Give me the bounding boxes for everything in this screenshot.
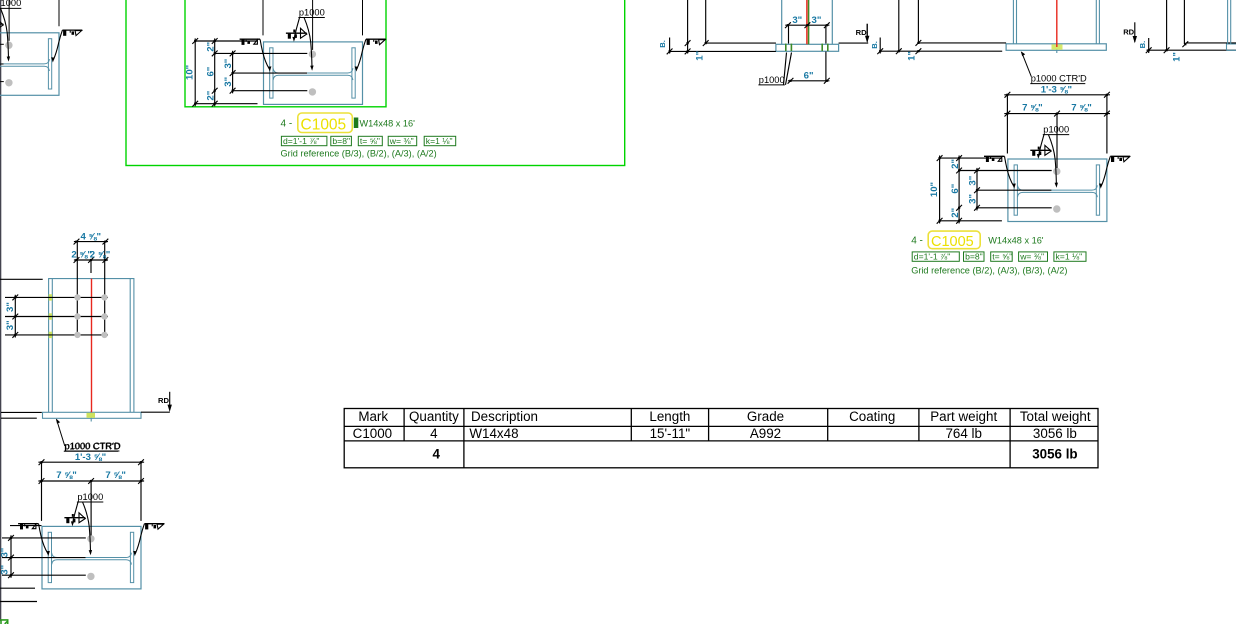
svg-text:b=8": b=8" bbox=[965, 251, 983, 261]
svg-text:4 -: 4 - bbox=[281, 118, 293, 129]
svg-text:k=1 ⅛": k=1 ⅛" bbox=[1056, 251, 1083, 261]
svg-text:p1000: p1000 bbox=[759, 75, 785, 85]
svg-text:3": 3" bbox=[5, 302, 16, 312]
svg-text:6": 6" bbox=[804, 70, 814, 81]
svg-text:Length: Length bbox=[649, 409, 690, 424]
svg-text:3": 3" bbox=[792, 15, 802, 26]
svg-text:B.: B. bbox=[1138, 41, 1147, 49]
svg-text:2 ⅝": 2 ⅝" bbox=[90, 250, 111, 261]
svg-text:B.: B. bbox=[870, 41, 879, 49]
svg-text:Part weight: Part weight bbox=[930, 409, 997, 424]
svg-text:3056 lb: 3056 lb bbox=[1033, 426, 1077, 441]
svg-text:Coating: Coating bbox=[849, 409, 895, 424]
svg-text:Grid reference (B/3), (B/2), (: Grid reference (B/3), (B/2), (A/3), (A/2… bbox=[281, 148, 437, 158]
svg-text:w= ⅜": w= ⅜" bbox=[1019, 251, 1044, 261]
svg-text:764 lb: 764 lb bbox=[945, 426, 981, 441]
svg-text:d=1'-1 ⅞": d=1'-1 ⅞" bbox=[914, 251, 950, 261]
svg-text:1": 1" bbox=[1172, 52, 1182, 62]
svg-text:4 -: 4 - bbox=[911, 235, 923, 246]
svg-text:A992: A992 bbox=[750, 426, 781, 441]
svg-text:b=8": b=8" bbox=[332, 136, 350, 146]
svg-text:W14x48: W14x48 bbox=[469, 426, 518, 441]
svg-text:4: 4 bbox=[432, 447, 440, 462]
svg-text:w= ⅜": w= ⅜" bbox=[389, 136, 414, 146]
svg-text:RD: RD bbox=[158, 396, 169, 405]
svg-text:15'-11": 15'-11" bbox=[650, 426, 691, 441]
svg-text:3": 3" bbox=[812, 15, 822, 26]
svg-text:4 ⅝": 4 ⅝" bbox=[81, 232, 102, 243]
svg-text:W14x48 x 16': W14x48 x 16' bbox=[988, 235, 1044, 245]
svg-text:Grid reference (B/2), (A/3), (: Grid reference (B/2), (A/3), (B/3), (A/2… bbox=[911, 265, 1067, 275]
svg-text:k=1 ⅛": k=1 ⅛" bbox=[426, 136, 453, 146]
svg-text:C1005: C1005 bbox=[301, 116, 347, 133]
svg-text:RD: RD bbox=[856, 28, 867, 37]
svg-text:C1005: C1005 bbox=[931, 234, 974, 250]
svg-text:1": 1" bbox=[906, 51, 916, 61]
svg-text:RD: RD bbox=[1123, 27, 1134, 36]
svg-text:3": 3" bbox=[0, 548, 10, 558]
svg-text:Mark: Mark bbox=[358, 409, 388, 424]
svg-text:3": 3" bbox=[5, 320, 16, 330]
svg-text:t= ⅝": t= ⅝" bbox=[992, 251, 1012, 261]
svg-text:1": 1" bbox=[694, 51, 705, 61]
svg-text:4: 4 bbox=[430, 426, 438, 441]
svg-text:p1000 CTR'D: p1000 CTR'D bbox=[64, 442, 120, 452]
svg-text:t= ⅝": t= ⅝" bbox=[360, 136, 380, 146]
svg-text:3056 lb: 3056 lb bbox=[1032, 447, 1077, 462]
svg-text:Grade: Grade bbox=[747, 409, 784, 424]
svg-text:Quantity: Quantity bbox=[409, 409, 459, 424]
svg-text:B.: B. bbox=[658, 40, 667, 48]
svg-text:d=1'-1 ⅞": d=1'-1 ⅞" bbox=[283, 136, 319, 146]
svg-text:3": 3" bbox=[0, 565, 10, 575]
svg-text:W14x48 x 16': W14x48 x 16' bbox=[360, 118, 416, 128]
svg-text:C1000: C1000 bbox=[353, 426, 392, 441]
svg-text:Total weight: Total weight bbox=[1020, 409, 1091, 424]
svg-text:Description: Description bbox=[471, 409, 538, 424]
